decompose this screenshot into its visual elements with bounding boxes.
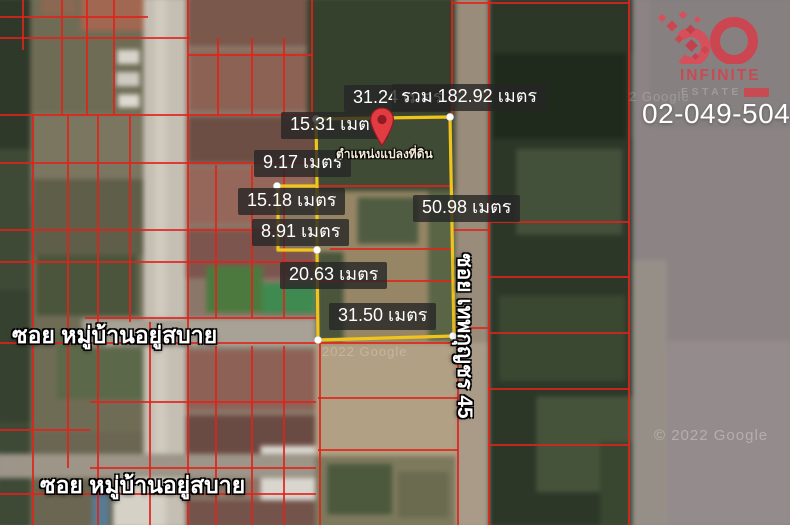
- measurement-label: 31.50 เมตร: [329, 303, 436, 330]
- road-label-soi-mubaan-bottom: ซอย หมู่บ้านอยู่สบาย: [40, 468, 245, 504]
- logo-red-tag: [744, 88, 769, 97]
- phone-number: 02-049-5049: [642, 98, 790, 130]
- logo-wordmark: INFINITE: [680, 67, 761, 85]
- measurement-label-total: รวม 182.92 เมตร: [392, 84, 546, 111]
- measurement-label: 50.98 เมตร: [413, 195, 520, 222]
- logo-subtext: ESTATE: [681, 86, 742, 98]
- road-label-soi-thepkunchon-45: ซอย เทพกุญชร 45: [455, 250, 481, 422]
- infinity-icon: [638, 6, 790, 64]
- plot-vertex-dot: [313, 246, 320, 253]
- infinite-estate-logo: INFINITE ESTATE: [638, 6, 790, 100]
- location-pin-icon: [368, 106, 396, 150]
- measurement-label: 15.18 เมตร: [238, 188, 345, 215]
- measurement-label: 8.91 เมตร: [252, 219, 349, 246]
- road-label-soi-mubaan-top: ซอย หมู่บ้านอยู่สบาย: [12, 318, 217, 354]
- measurement-label: 20.63 เมตร: [280, 262, 387, 289]
- plot-vertex-dot: [314, 336, 321, 343]
- google-watermark: 2022 Google: [322, 344, 407, 359]
- map-screenshot: 31.24 เมตร รวม 182.92 เมตร 15.31 เมตร 9.…: [0, 0, 790, 525]
- google-watermark: © 2022 Google: [654, 427, 768, 444]
- plot-vertex-dot: [446, 113, 453, 120]
